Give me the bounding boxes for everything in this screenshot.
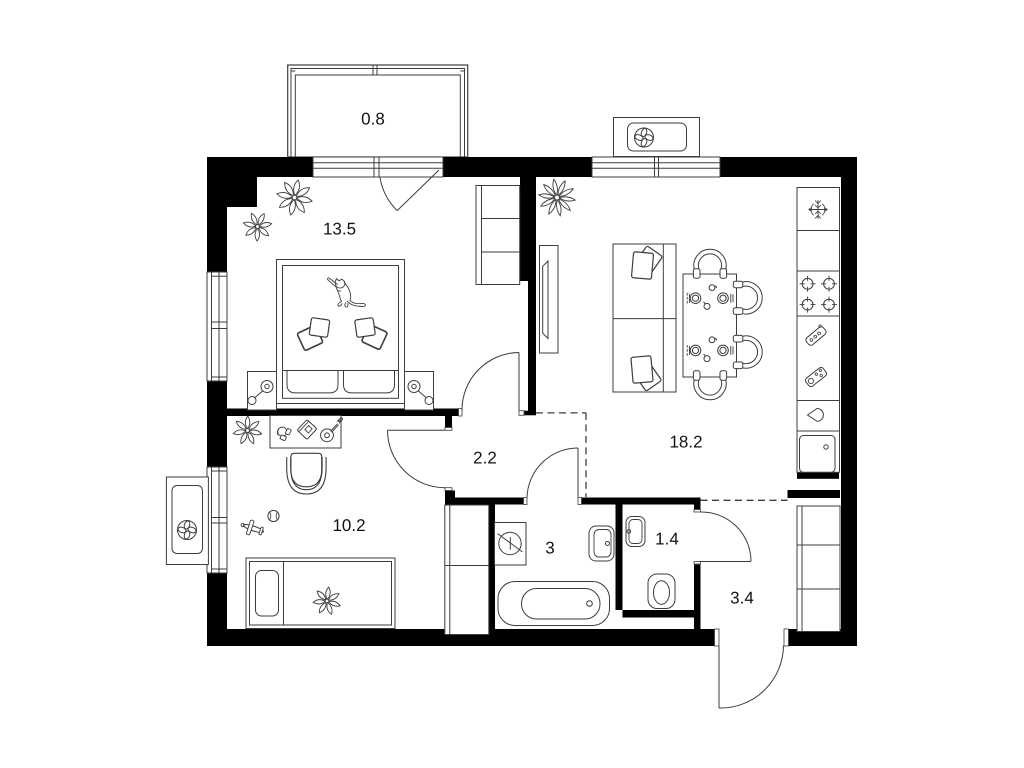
svg-text:18.2: 18.2 <box>669 433 702 452</box>
svg-text:2.2: 2.2 <box>473 449 497 468</box>
svg-text:0.8: 0.8 <box>361 110 385 129</box>
svg-text:3: 3 <box>545 539 554 558</box>
svg-text:10.2: 10.2 <box>332 516 365 535</box>
svg-text:13.5: 13.5 <box>323 220 356 239</box>
svg-text:1.4: 1.4 <box>655 530 679 549</box>
svg-text:3.4: 3.4 <box>730 589 754 608</box>
